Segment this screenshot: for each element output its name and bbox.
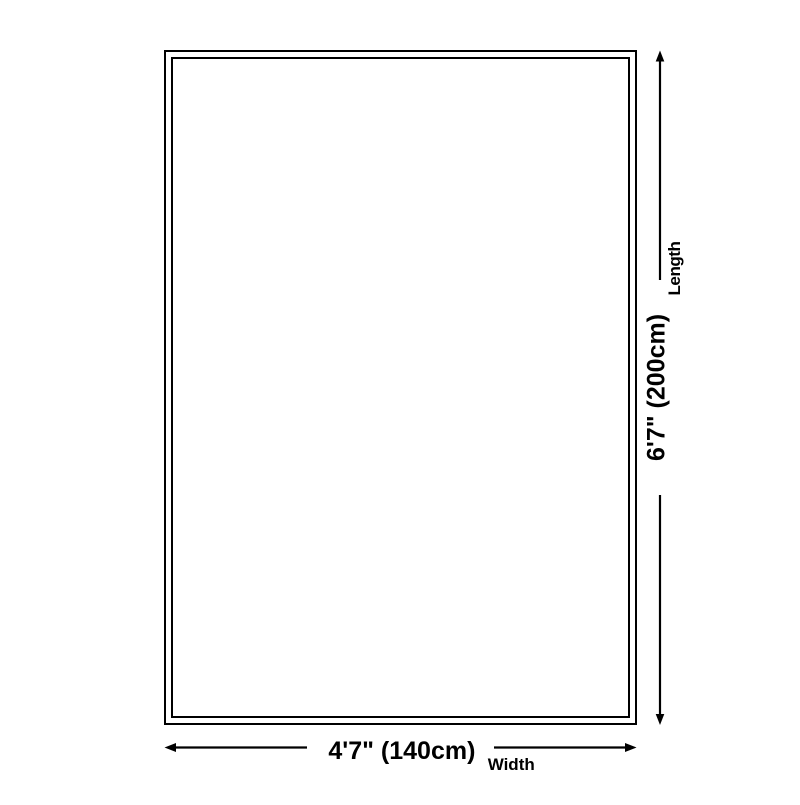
svg-text:4'7" (140cm): 4'7" (140cm) — [328, 737, 475, 765]
svg-text:6'7" (200cm): 6'7" (200cm) — [643, 314, 671, 461]
svg-text:Length: Length — [665, 241, 684, 295]
svg-text:Width: Width — [488, 755, 535, 774]
